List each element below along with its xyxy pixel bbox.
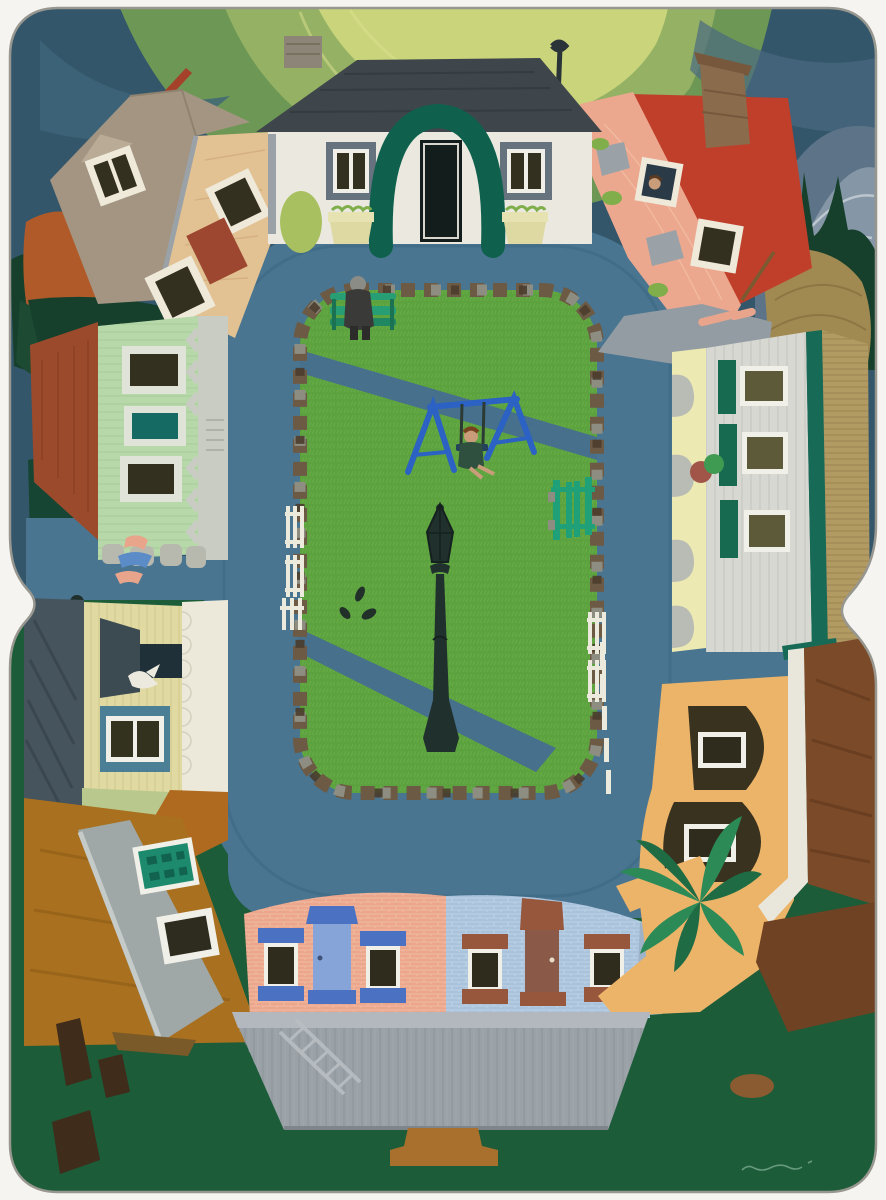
corrugation bbox=[238, 1028, 644, 1128]
stone-chimney bbox=[284, 36, 322, 68]
salmon-window-upper bbox=[634, 157, 683, 208]
brown-shingle-roof bbox=[804, 636, 876, 905]
roof-ridge-lip bbox=[232, 1012, 650, 1028]
salmon-window-lower bbox=[690, 218, 744, 273]
foreground-roof bbox=[232, 1012, 650, 1130]
brown-patch bbox=[730, 1074, 774, 1098]
gray-house-window bbox=[156, 908, 219, 965]
blue-house-window-left bbox=[462, 934, 508, 1004]
bay-window bbox=[100, 706, 170, 772]
cottage-door bbox=[420, 140, 462, 242]
gingerbread-trim bbox=[198, 316, 228, 560]
road-fence-fragment bbox=[280, 598, 304, 630]
planter-right bbox=[502, 207, 548, 245]
pink-house-window-right bbox=[360, 931, 406, 1003]
shutters-and-windows bbox=[718, 360, 790, 558]
shaped-canvas-painting bbox=[0, 0, 886, 1200]
cottage-window-left bbox=[326, 142, 376, 200]
painting-surface bbox=[10, 8, 876, 1196]
green-gate bbox=[548, 477, 595, 540]
cottage-downspout bbox=[268, 134, 276, 234]
front-bush bbox=[280, 191, 322, 253]
roof-ribs bbox=[822, 330, 870, 652]
central-park bbox=[285, 276, 606, 793]
mint-window-lower bbox=[120, 456, 182, 502]
pink-house-window-left bbox=[258, 928, 304, 1001]
mint-window-teal bbox=[124, 406, 186, 446]
painting-photo bbox=[0, 0, 886, 1200]
pink-house-door bbox=[306, 906, 358, 1004]
mint-window-upper bbox=[122, 346, 186, 394]
teal-paneled-door bbox=[132, 837, 199, 895]
cottage-window-right bbox=[500, 142, 552, 200]
planter-left bbox=[328, 207, 374, 245]
